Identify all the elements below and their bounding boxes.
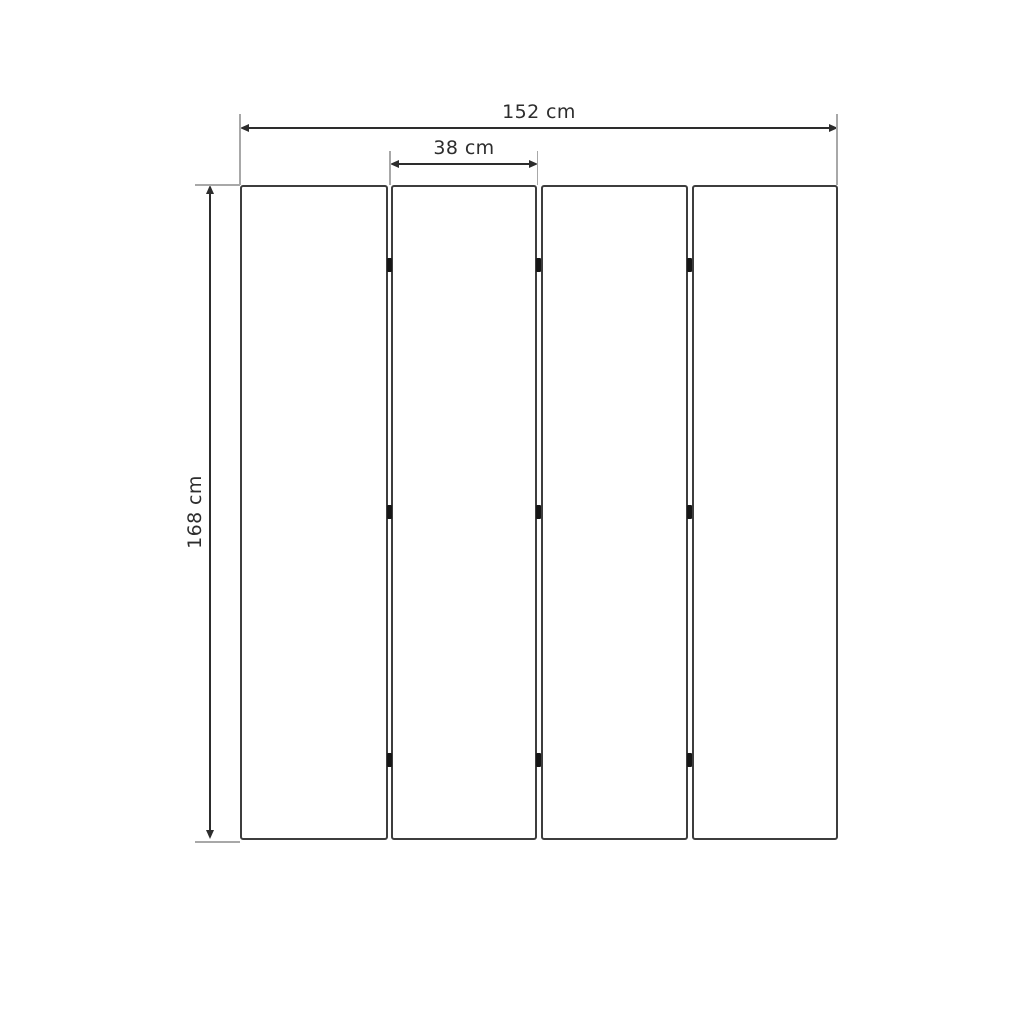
- hinge-icon: [536, 505, 541, 519]
- hinge-icon: [387, 258, 392, 272]
- hinge-icon: [687, 753, 692, 767]
- hinge-icon: [536, 258, 541, 272]
- arrow-left-icon: [240, 124, 249, 132]
- extension-line-top: [195, 184, 240, 186]
- screen-panel-4: [692, 185, 838, 840]
- hinge-icon: [387, 505, 392, 519]
- arrow-left-icon: [390, 160, 399, 168]
- height-dimension-line: [209, 192, 211, 832]
- extension-line-left: [389, 151, 391, 185]
- dimension-diagram: 152 cm 38 cm 168 cm: [0, 0, 1024, 1024]
- hinge-icon: [687, 258, 692, 272]
- extension-line-right: [836, 114, 838, 185]
- screen-panel-2: [391, 185, 537, 840]
- panel-width-dimension-line: [397, 163, 531, 165]
- hinge-icon: [387, 753, 392, 767]
- hinge-icon: [536, 753, 541, 767]
- arrow-down-icon: [206, 830, 214, 839]
- total-width-label: 152 cm: [439, 100, 639, 124]
- extension-line-right: [537, 151, 539, 185]
- arrow-up-icon: [206, 185, 214, 194]
- screen-panel-1: [240, 185, 388, 840]
- extension-line-bottom: [195, 841, 240, 843]
- extension-line-left: [239, 114, 241, 185]
- total-width-dimension-line: [247, 127, 831, 129]
- height-label: 168 cm: [183, 462, 209, 562]
- panel-width-label: 38 cm: [384, 136, 544, 160]
- screen-panel-3: [541, 185, 688, 840]
- hinge-icon: [687, 505, 692, 519]
